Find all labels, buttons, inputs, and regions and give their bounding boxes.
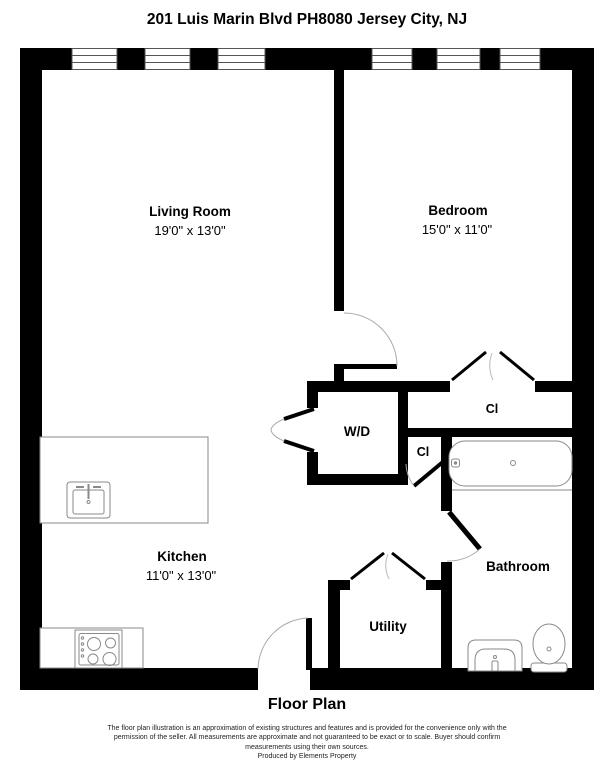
window [500,49,540,70]
washer-dryer-label: W/D [344,424,370,439]
floor-plan-page: 201 Luis Marin Blvd PH8080 Jersey City, … [0,0,614,768]
toilet [531,624,567,672]
living-room-label: Living Room [149,204,231,219]
kitchen-dimensions: 11'0" x 13'0" [146,568,216,583]
bathroom-sink [468,640,522,671]
bathroom-door [447,512,480,561]
kitchen-label: Kitchen [157,549,207,564]
bedroom-label: Bedroom [428,203,487,218]
bathroom-label: Bathroom [486,559,550,574]
kitchen-island [40,437,208,523]
utility-bifold-door [351,553,425,579]
disclaimer-line-1: The floor plan illustration is an approx… [0,724,614,733]
disclaimer: The floor plan illustration is an approx… [0,724,614,762]
bedroom-door [344,313,397,369]
utility-label: Utility [369,619,407,634]
window [72,49,117,70]
window [437,49,480,70]
disclaimer-line-3: measurements using their own sources. [0,743,614,752]
floor-plan-drawing [0,0,614,768]
window [218,49,265,70]
bathtub [449,441,572,490]
bedroom-dimensions: 15'0" x 11'0" [422,222,492,237]
page-title: 201 Luis Marin Blvd PH8080 Jersey City, … [147,11,467,29]
outer-walls [20,48,594,690]
floor-plan-caption: Floor Plan [268,696,346,714]
small-closet-door [406,461,444,486]
window [145,49,190,70]
entry-door [258,618,312,670]
window [372,49,412,70]
large-closet-label: Cl [486,402,499,416]
produced-by: Produced by Elements Property [0,752,614,761]
living-room-dimensions: 19'0" x 13'0" [154,223,225,238]
disclaimer-line-2: permission of the seller. All measuremen… [0,733,614,742]
bedroom-closet-bifold-door [452,352,534,380]
small-closet-label: Cl [417,445,430,459]
wd-double-doors [271,409,314,451]
